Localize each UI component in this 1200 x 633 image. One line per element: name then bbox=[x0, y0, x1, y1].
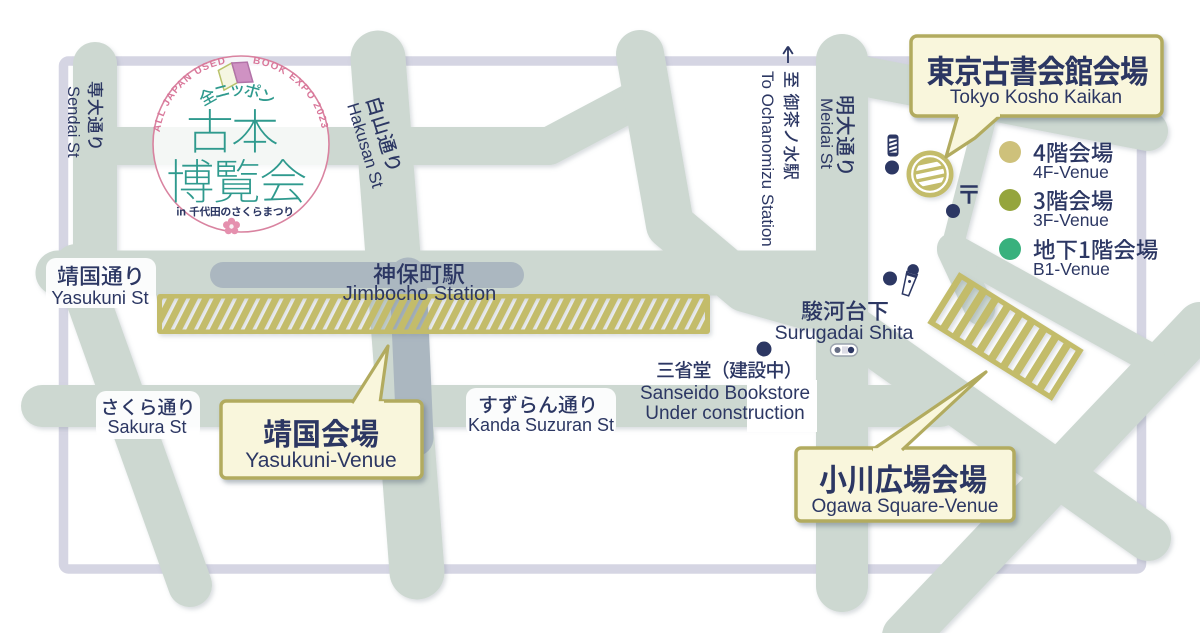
svg-text:Jimbocho Station: Jimbocho Station bbox=[343, 283, 496, 305]
svg-text:Ogawa Square-Venue: Ogawa Square-Venue bbox=[812, 496, 999, 517]
svg-text:Sakura St: Sakura St bbox=[107, 417, 186, 437]
svg-text:3F-Venue: 3F-Venue bbox=[1033, 210, 1109, 230]
svg-text:Yasukuni St: Yasukuni St bbox=[51, 287, 148, 308]
svg-text:Kanda Suzuran St: Kanda Suzuran St bbox=[468, 415, 614, 435]
svg-text:B1-Venue: B1-Venue bbox=[1033, 259, 1110, 279]
svg-text:4F-Venue: 4F-Venue bbox=[1033, 162, 1109, 182]
svg-text:Yasukuni-Venue: Yasukuni-Venue bbox=[245, 449, 396, 472]
svg-text:To Ochanomizu Station: To Ochanomizu Station bbox=[758, 71, 777, 247]
svg-text:Under construction: Under construction bbox=[645, 403, 804, 424]
svg-text:Sanseido Bookstore: Sanseido Bookstore bbox=[640, 383, 810, 404]
svg-text:Tokyo Kosho Kaikan: Tokyo Kosho Kaikan bbox=[950, 87, 1122, 108]
svg-text:Meidai St: Meidai St bbox=[817, 98, 836, 169]
svg-text:Surugadai Shita: Surugadai Shita bbox=[775, 322, 914, 344]
svg-text:Sendai St: Sendai St bbox=[64, 86, 82, 158]
